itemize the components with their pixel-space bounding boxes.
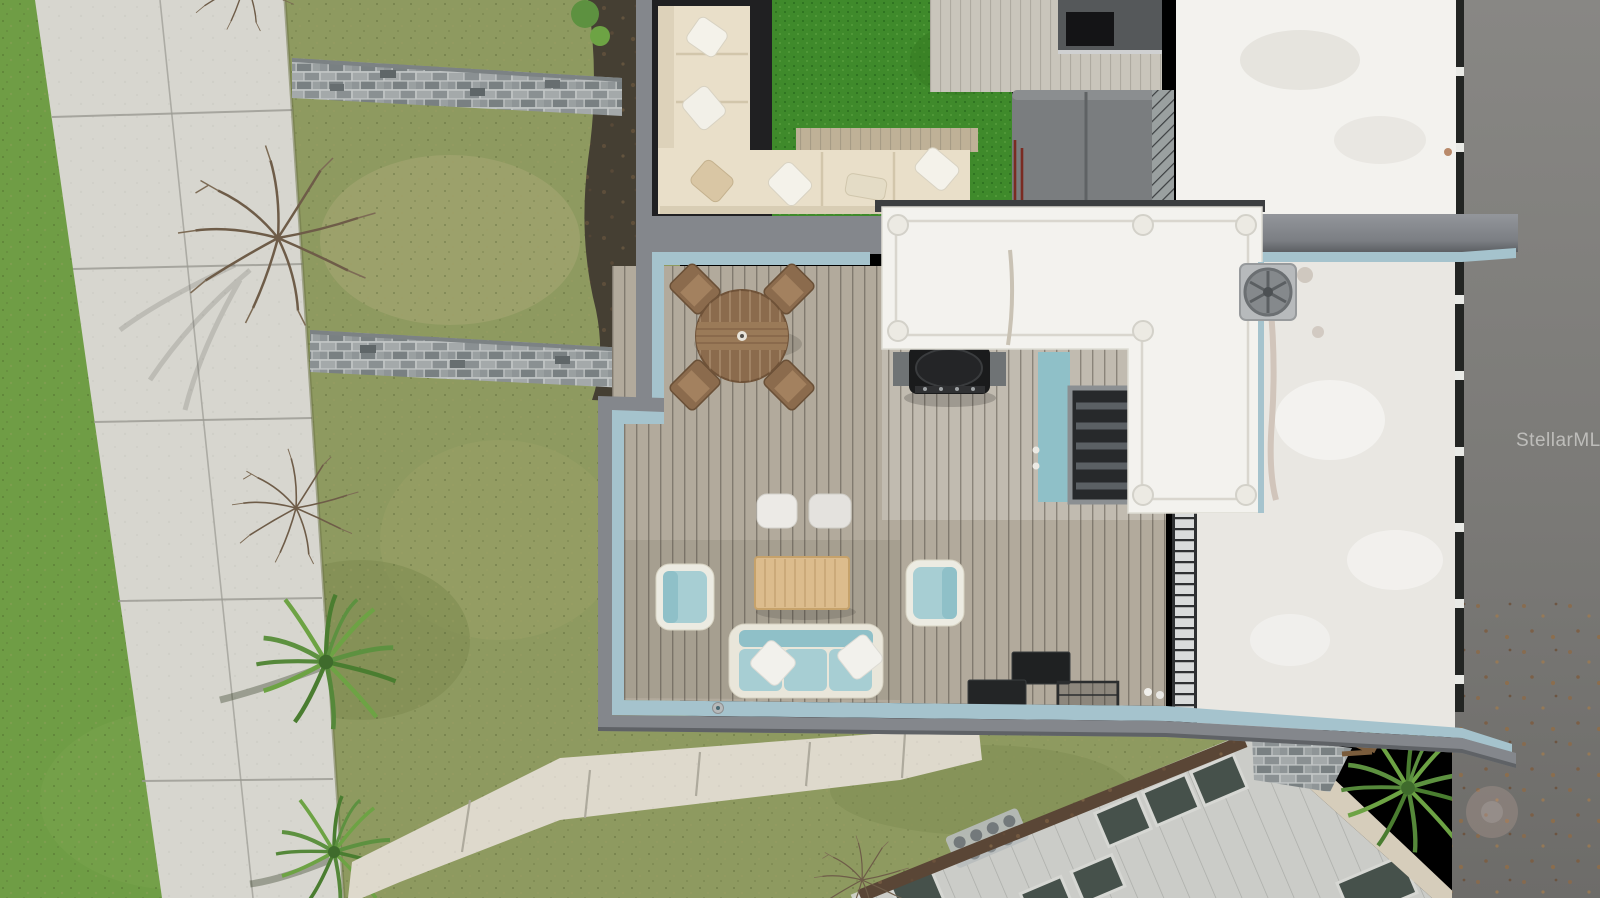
grill-side-shelf [988,352,1006,386]
roof-spot [1297,267,1313,283]
deck-parapet-teal [652,252,870,265]
deck-left-teal [652,254,664,402]
adjacent-white-roof [1176,0,1456,216]
aerial-photo-canvas [0,0,1600,898]
shrub [590,26,610,46]
gate-hinge [1033,463,1040,470]
roof-stain [1250,614,1330,666]
coffee-table [755,557,849,609]
teal-sofa [729,624,885,698]
teal-armchair-left [656,564,714,630]
roof-ladder [1172,508,1197,714]
lens-flare-core [1481,801,1503,823]
ottoman-pouf [809,494,851,528]
shrub [571,0,599,28]
aerial-photo: StellarMLS [0,0,1600,898]
roof-overhang [1058,0,1162,54]
stairwell-teal-wall [1038,352,1070,502]
watermark: StellarMLS [1516,430,1600,452]
deck-parapet [638,216,884,254]
rust-spot [1444,148,1452,156]
roof-spot [1312,326,1324,338]
gate-hinge [1033,447,1040,454]
roof-stain [1334,116,1426,164]
sectional-arm [658,6,674,152]
ac-vent-fan [1240,264,1296,320]
ottoman-pouf [757,494,797,528]
deck-left-fascia-lower [598,404,612,730]
privacy-fence [1455,0,1464,712]
deck-left-teal-lower [612,418,624,708]
roof-stain [1347,530,1443,590]
rooftop-unit [1066,12,1114,46]
grill-side-shelf [893,352,911,386]
roof-stain [1240,30,1360,90]
hot-tub [1012,90,1160,216]
teal-armchair-right [906,560,964,626]
round-dining-table [694,290,790,382]
hot-tub-railing [1152,90,1174,216]
deck-cup [1144,688,1152,696]
deck-cup [1156,691,1164,699]
roof-stain [1275,380,1385,460]
deck-left-fascia [636,0,652,402]
upper-terrace [638,0,1265,216]
